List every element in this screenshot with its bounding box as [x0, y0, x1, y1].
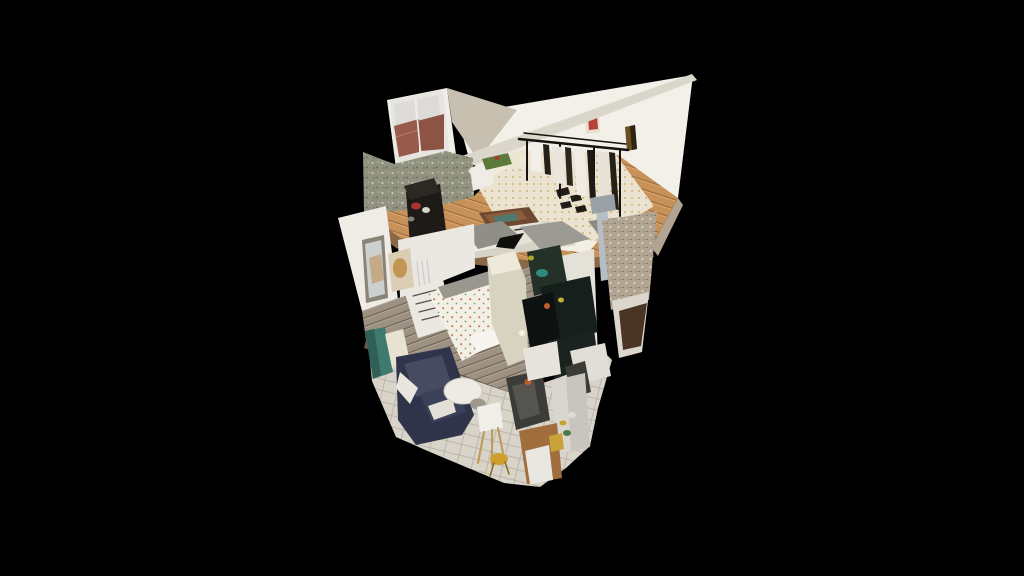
glitch-orange-speck — [544, 303, 550, 309]
viewer-stage — [0, 0, 1024, 576]
garment-white-1 — [530, 143, 542, 172]
plant-berries — [495, 156, 500, 160]
counter-white-box — [525, 445, 553, 484]
crate-item-grey — [408, 217, 415, 222]
floor-item-yellow — [549, 433, 564, 452]
glitch-teal-speck — [536, 269, 548, 277]
shelf-item-white — [568, 412, 576, 418]
shelf-item-green — [563, 430, 571, 436]
stair-lamp-glow — [519, 330, 525, 336]
glitch-yellow-speck-2 — [528, 256, 534, 261]
crate-item-white — [422, 207, 430, 213]
crate-item-red — [411, 203, 421, 210]
garment-white-2 — [552, 146, 564, 184]
wall-art-flowers — [393, 258, 407, 278]
floor-lamp-shade — [477, 402, 503, 432]
dollhouse-3d-viewport[interactable] — [0, 0, 1024, 576]
granite-band — [602, 211, 657, 310]
shelf-item-yellow — [560, 421, 567, 426]
glitch-yellow-speck-1 — [558, 298, 564, 303]
